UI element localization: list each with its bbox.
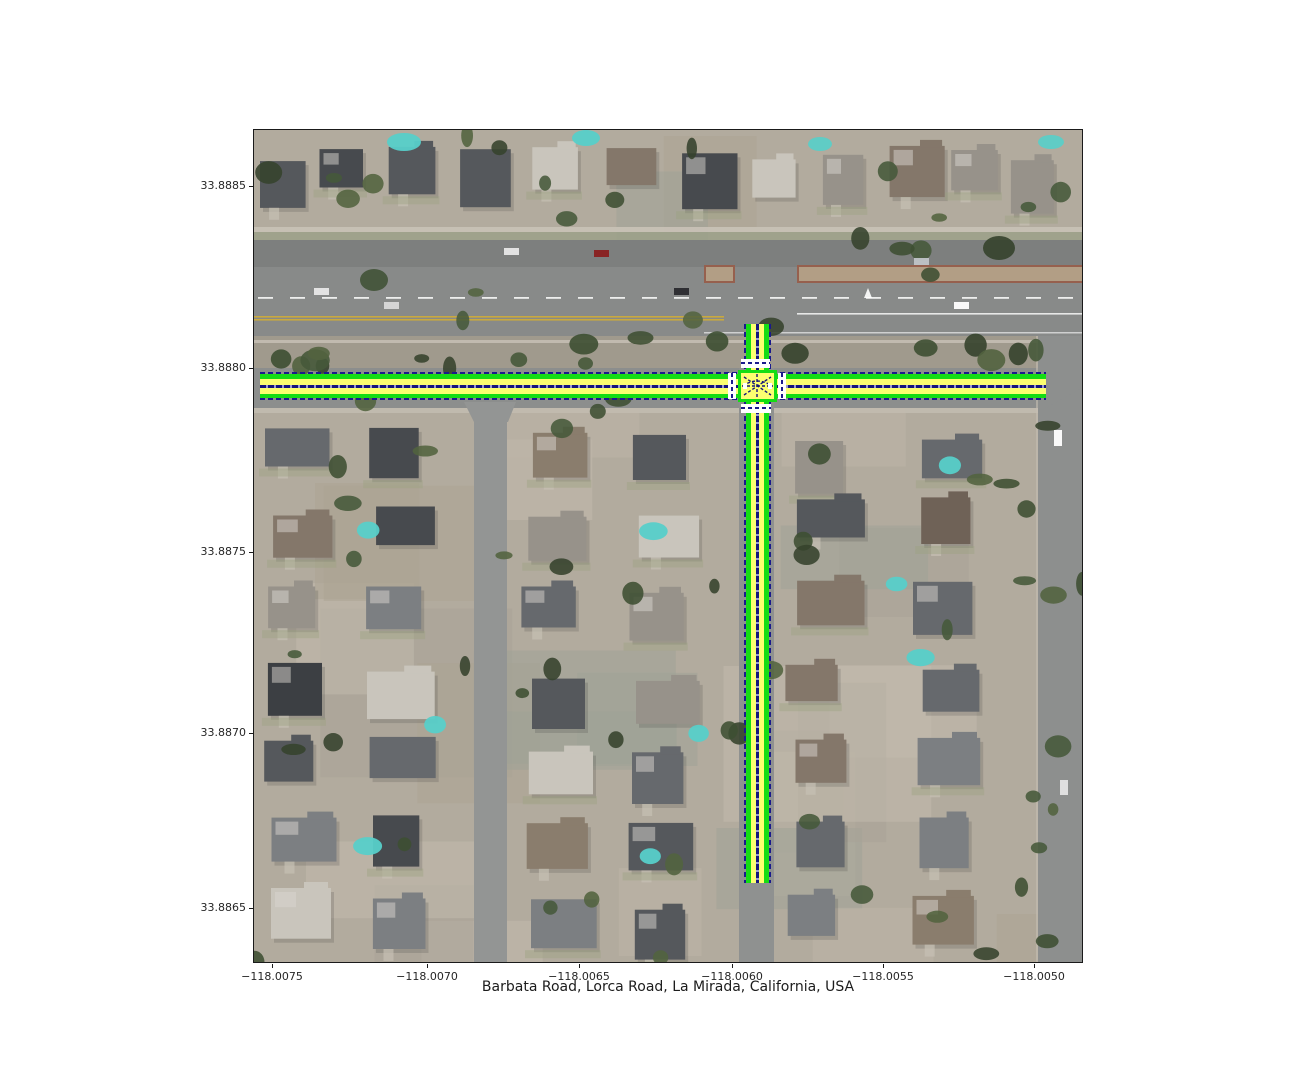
x-tick-mark (427, 964, 428, 968)
crosswalk-dash-line (781, 373, 783, 399)
crosswalk-dash-line (741, 407, 771, 409)
crosswalk-dash-line (741, 362, 770, 364)
route-overlay-lorca-road (744, 400, 771, 883)
y-tick-mark (249, 186, 253, 187)
x-tick-mark (732, 964, 733, 968)
x-tick-mark (883, 964, 884, 968)
y-tick-mark (249, 552, 253, 553)
y-tick-label: 33.8875 (130, 545, 246, 558)
intersection-lane-links (741, 373, 774, 399)
x-tick-mark (272, 964, 273, 968)
road-edge-line (260, 398, 1046, 400)
crosswalk-north (741, 359, 770, 368)
y-tick-label: 33.8870 (130, 726, 246, 739)
crosswalk-east (778, 373, 786, 399)
y-tick-mark (249, 733, 253, 734)
intersection-node (738, 370, 777, 402)
plot-area (253, 129, 1083, 963)
y-tick-mark (249, 908, 253, 909)
crosswalk-west (728, 373, 736, 399)
figure-title: Barbata Road, Lorca Road, La Mirada, Cal… (253, 979, 1083, 995)
x-tick-mark (1034, 964, 1035, 968)
x-tick-mark (579, 964, 580, 968)
matplotlib-figure: 33.888533.888033.887533.887033.8865 −118… (0, 0, 1300, 1080)
y-tick-label: 33.8885 (130, 179, 246, 192)
crosswalk-dash-line (731, 373, 733, 399)
y-tick-label: 33.8880 (130, 361, 246, 374)
y-tick-mark (249, 368, 253, 369)
crosswalk-south (741, 404, 771, 413)
route-overlay-barbata-road (260, 372, 1046, 400)
road-edge-line (769, 400, 771, 883)
aerial-imagery (254, 130, 1083, 963)
y-tick-label: 33.8865 (130, 901, 246, 914)
